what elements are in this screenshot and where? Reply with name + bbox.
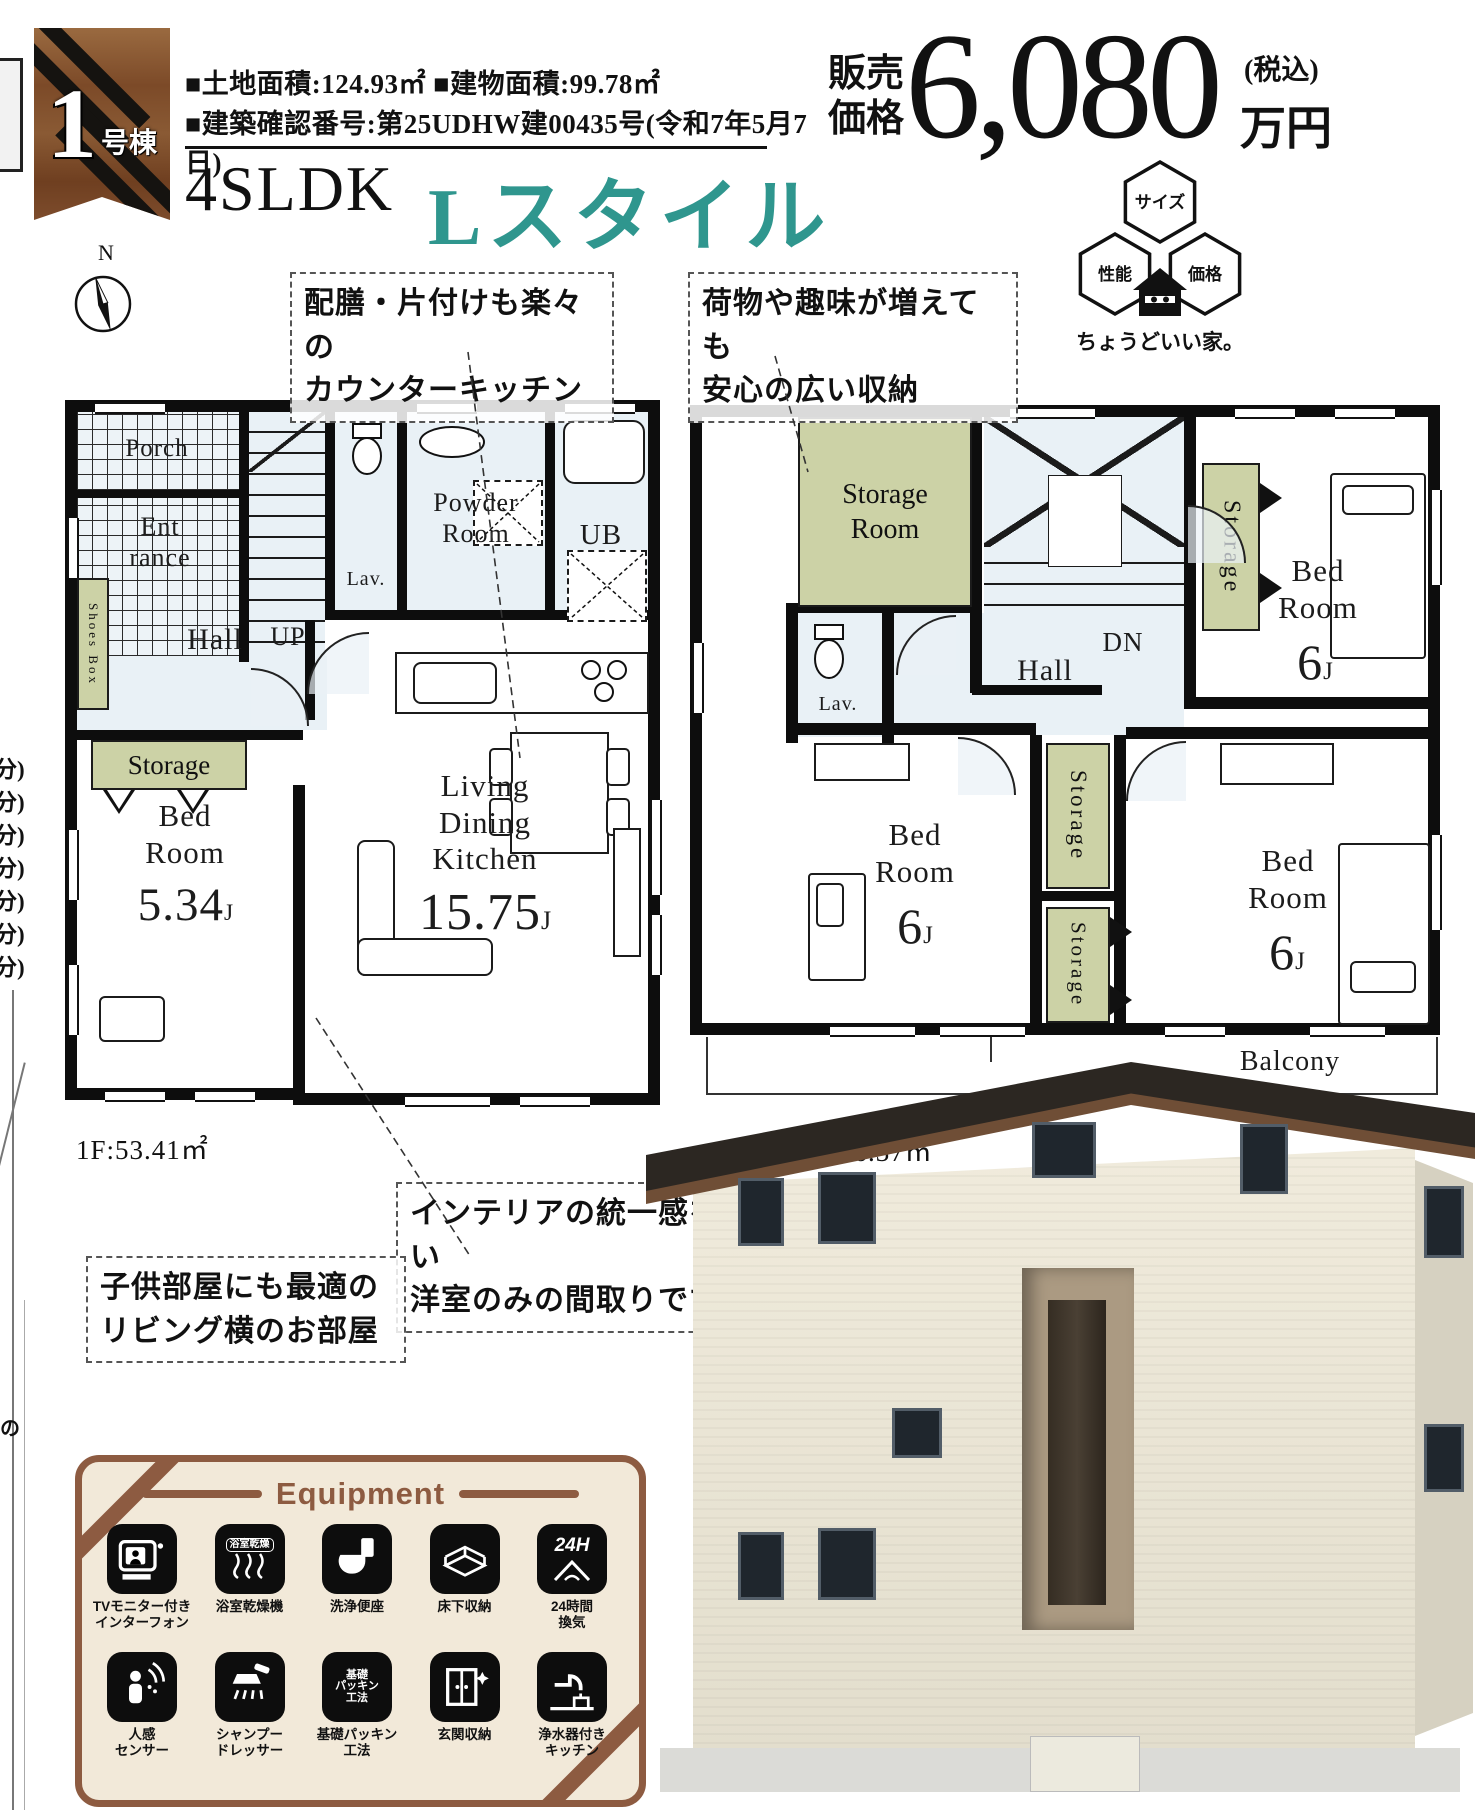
equipment-item: 洗浄便座 [307,1524,407,1630]
house-window [738,1532,784,1600]
bedroom-1f-size: 5.34J [93,878,278,933]
price-amount: 6,080 [905,14,1217,158]
desk [814,743,910,781]
bedroom3-size: 6J [1222,923,1352,982]
equipment-item: 人感 センサー [92,1652,192,1758]
house-entrance-step [1030,1736,1140,1792]
house-window [1032,1122,1096,1178]
floor-plan-2f: Storage Room Storage Storage Storage [690,405,1442,1105]
house-front-door [1048,1300,1106,1605]
sofa [357,938,493,976]
style-name: Lスタイル [428,152,831,268]
kitchen-sink [413,662,497,704]
stairs-landing [1048,475,1122,567]
equipment-item: 玄関収納 [415,1652,515,1758]
bedroom3-label: Bed Room [1208,843,1368,916]
water-purifier-icon [537,1652,607,1722]
storage-room-label: Storage Room [842,477,928,547]
storage-1f: Storage [91,740,247,790]
equipment-item: 床下収納 [415,1524,515,1630]
flyer-page: 分) 分) 分) 分) 分) 分) 分) の 1 号棟 ■土地面積:124.93… [0,0,1480,1810]
house-window [1424,1424,1464,1492]
storage-1f-label: Storage [128,750,210,781]
sink-icon [417,424,487,460]
title-bar-left [142,1490,262,1498]
bedroom-furniture [99,996,165,1042]
building-number: 1 [47,74,97,174]
bathtub [563,420,645,484]
callout-kitchen: 配膳・片付けも楽々の カウンターキッチン [290,272,614,423]
balcony-step [990,1037,992,1062]
shoes-box-label: Shoes Box [85,603,101,686]
svg-text:価格: 価格 [1187,264,1223,284]
floor1-area-label: 1F:53.41㎡ [76,1128,209,1167]
equipment-item: 浄水器付き キッチン [522,1652,622,1758]
compass-n: N [98,240,114,265]
price-unit: 万円 [1240,92,1332,158]
callout-kids-room: 子供部屋にも最適の リビング横のお部屋 [86,1256,406,1363]
storage-room-2f: Storage Room [798,417,972,607]
left-edge-text: 分) [0,849,25,883]
left-edge-text: 分) [0,948,25,982]
storage-2f-b: Storage [1046,743,1110,889]
balcony-label: Balcony [1190,1045,1390,1078]
closet-door [1110,985,1132,1015]
brand-tagline: ちょうどいい家。 [1062,326,1258,356]
left-edge-map-line [24,1300,25,1810]
house-window [738,1178,784,1246]
porch-label: Porch [87,434,227,464]
closet-door [1260,483,1282,513]
house-window [1424,1186,1464,1258]
shampoo-dresser-icon [215,1652,285,1722]
equipment-item: 浴室乾燥 浴室乾燥機 [200,1524,300,1630]
left-edge-char: の [0,1412,20,1441]
bath-dryer-icon: 浴室乾燥 [215,1524,285,1594]
equipment-title: Equipment [276,1476,445,1512]
equipment-item: TVモニター付き インターフォン [92,1524,192,1630]
layout-type: 4SLDK [185,152,394,226]
motion-sensor-icon [107,1652,177,1722]
price-label: 販売 価格 [828,52,904,142]
ldk-size: 15.75J [360,882,610,943]
left-edge-text: 分) [0,915,25,949]
bedroom1-size: 6J [1250,633,1380,692]
lav-2f-label: Lav. [798,693,878,717]
left-edge-text: 分) [0,750,25,784]
left-edge-text: 分) [0,882,25,916]
storage-2f-c: Storage [1046,907,1110,1023]
svg-text:サイズ: サイズ [1135,192,1186,212]
equipment-panel: Equipment TVモニター付き インターフォン [75,1455,646,1807]
bedroom1-label: Bed Room [1238,553,1398,626]
powder-label: Powder Room [413,488,539,549]
closet-door [1110,917,1132,947]
hall-2f-label: Hall [980,653,1110,688]
toilet-icon [808,623,850,685]
hall-1f-label: Hall [155,622,275,657]
washlet-icon [322,1524,392,1594]
equipment-item: シャンプー ドレッサー [200,1652,300,1758]
brand-logo: サイズ 性能 価格 [1065,150,1255,322]
pillow [1342,485,1414,515]
compass-icon: N [66,240,140,344]
equipment-item: 24H 24時間 換気 [522,1524,622,1630]
equipment-item: 基礎 パッキン 工法 基礎パッキン 工法 [307,1652,407,1758]
left-edge-text: 分) [0,783,25,817]
house-window [818,1528,876,1600]
storage-label: Storage [1065,770,1091,861]
foundation-packing-icon: 基礎 パッキン 工法 [322,1652,392,1722]
toilet-icon [347,422,387,480]
left-edge-cut-box [0,58,23,172]
chair [606,748,630,786]
price-tax-note: (税込) [1244,48,1319,88]
entrance-storage-icon [430,1652,500,1722]
left-edge-text: 分) [0,816,25,850]
callout-storage: 荷物や趣味が増えても 安心の広い収納 [688,272,1018,423]
shoes-box: Shoes Box [77,578,109,710]
intercom-icon [107,1524,177,1594]
fridge-space [567,550,647,622]
bedroom-1f-label: Bed Room [105,798,265,871]
bedroom2-label: Bed Room [835,817,995,890]
bedroom2-size: 6J [850,897,980,956]
building-number-badge: 1 号棟 [34,28,170,220]
pillow [1350,961,1416,993]
door-arc [1126,741,1186,801]
tv-board [613,828,641,957]
ventilation-24h-icon: 24H [537,1524,607,1594]
house-window [892,1408,942,1458]
desk [1220,743,1334,785]
svg-text:性能: 性能 [1098,264,1132,284]
lav-1f-label: Lav. [333,568,399,592]
ub-label: UB [565,518,637,552]
entrance-label: Ent rance [95,512,225,573]
ldk-label: Living Dining Kitchen [365,768,605,878]
door-arc [958,737,1016,795]
underfloor-storage-icon [430,1524,500,1594]
house-window [818,1172,876,1244]
title-bar-right [459,1490,579,1498]
stove-icon [573,656,633,706]
header-divider [185,146,767,149]
storage-label: Storage [1066,922,1091,1007]
floor-plan-1f: Shoes Box Storage [65,400,660,1115]
house-window [1240,1124,1288,1194]
building-number-suffix: 号棟 [101,121,157,161]
land-building-area: ■土地面積:124.93㎡ ■建物面積:99.78㎡ [185,62,825,101]
